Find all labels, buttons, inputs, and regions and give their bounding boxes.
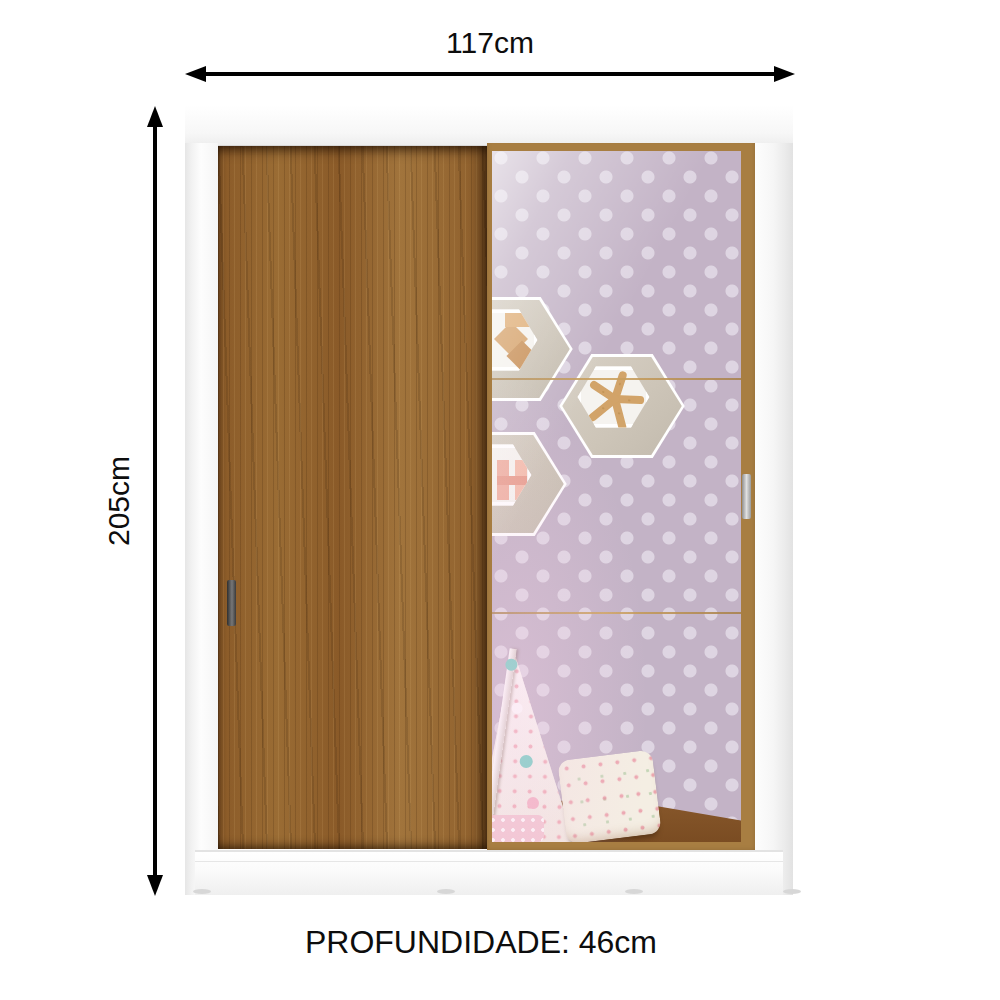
height-dimension-label: 205cm (102, 456, 136, 546)
arrow-head-down-icon (147, 875, 163, 896)
wardrobe (185, 105, 793, 895)
hexagon-shelf-frame (492, 299, 571, 399)
hexagon-shelf-opening (577, 366, 650, 428)
hexagon-shelf-middle (558, 353, 686, 459)
starfish-decor (583, 368, 647, 428)
width-dimension: 117cm (185, 26, 795, 84)
wood-sliding-door (218, 146, 487, 849)
hexagon-shelf-frame (561, 356, 683, 456)
wardrobe-left-side-panel (185, 143, 218, 895)
pink-blanket-reflection (492, 815, 544, 842)
mirror-seam (492, 612, 741, 614)
product-dimension-diagram: 117cm 205cm (0, 0, 1000, 1000)
wardrobe-right-side-panel (755, 143, 793, 895)
arrow-line (200, 72, 780, 76)
width-dimension-label: 117cm (185, 26, 795, 60)
foot-shadow (625, 889, 643, 894)
base-groove-line (195, 861, 783, 862)
foot-shadow (193, 889, 211, 894)
wooden-block-decor (505, 313, 538, 327)
foot-shadow (783, 889, 801, 894)
height-arrow-icon (146, 106, 164, 896)
depth-dimension-label: PROFUNDIDADE: 46cm (0, 924, 962, 961)
wood-door-handle (227, 580, 236, 626)
foot-shadow (437, 889, 455, 894)
width-arrow-icon (185, 64, 795, 84)
hexagon-shelf-bottom (492, 431, 568, 537)
hexagon-shelf-opening (492, 309, 538, 371)
mirror-door-handle (742, 474, 751, 519)
mirror-sliding-door (487, 143, 755, 854)
arrow-head-right-icon (774, 66, 795, 82)
pink-block-decor (497, 476, 527, 485)
mirror-seam (492, 378, 741, 380)
hexagon-shelf-top (492, 296, 574, 402)
floral-pillow-reflection (557, 750, 662, 842)
mirror (492, 151, 741, 842)
arrow-line (153, 121, 157, 881)
hexagon-shelf-frame (492, 434, 565, 534)
wardrobe-top-panel (185, 105, 793, 146)
hexagon-shelf-opening (492, 444, 532, 506)
height-dimension: 205cm (100, 106, 164, 896)
wardrobe-base-panel (195, 850, 783, 895)
